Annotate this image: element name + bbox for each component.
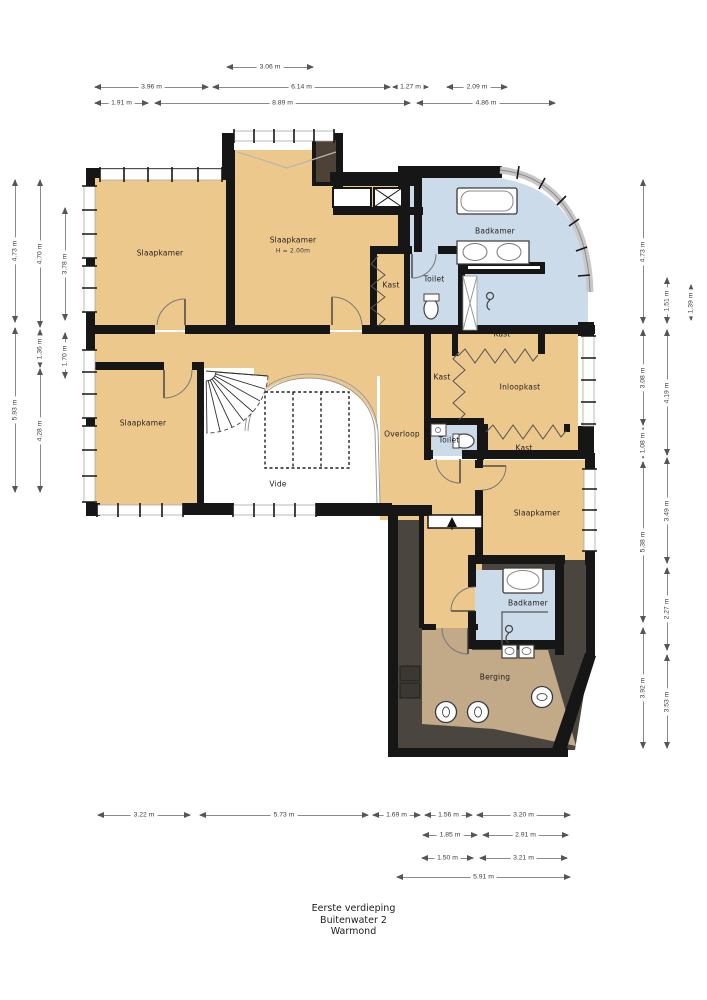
sink [519, 645, 534, 658]
title-floor: Eerste verdieping [0, 903, 707, 915]
roof-window [400, 666, 420, 681]
room-label-inloopkast: Inloopkast [500, 383, 541, 392]
washer [436, 702, 457, 723]
washer [532, 687, 553, 708]
room-label-slaapkamer-2: Slaapkamer [270, 236, 317, 245]
room-label-toilet-1: Toilet [424, 275, 445, 284]
room-label-slaapkamer-3: Slaapkamer [120, 419, 167, 428]
room-label-slaapkamer-4: Slaapkamer [514, 509, 561, 518]
small-sink [431, 424, 446, 436]
double-sink [457, 241, 529, 264]
title-address: Buitenwater 2 [0, 915, 707, 927]
shaft-box [333, 188, 371, 207]
room-label-vide: Vide [269, 480, 286, 489]
floor-plan: Eerste verdieping Buitenwater 2 Warmond … [0, 0, 707, 1000]
room-label-slaapkamer-2-height: H = 2.00m [276, 248, 310, 255]
room-label-slaapkamer-1: Slaapkamer [137, 249, 184, 258]
room-label-kast-3: Kast [433, 373, 450, 382]
room-label-overloop: Overloop [384, 430, 420, 439]
room-label-berging: Berging [480, 673, 510, 682]
floor-plan-drawing [0, 0, 707, 1000]
title-block: Eerste verdieping Buitenwater 2 Warmond [0, 903, 707, 938]
room-label-kast-2: Kast [493, 330, 510, 339]
roof-window [400, 683, 420, 698]
room-label-badkamer-1: Badkamer [475, 227, 515, 236]
sink [502, 645, 517, 658]
room-label-badkamer-2: Badkamer [508, 599, 548, 608]
room-label-kast-4: Kast [515, 444, 532, 453]
room-label-kast-1: Kast [382, 281, 399, 290]
room-label-toilet-2: Toilet [439, 436, 460, 445]
title-city: Warmond [0, 926, 707, 938]
washer [468, 702, 489, 723]
toilet-bowl [424, 299, 438, 319]
